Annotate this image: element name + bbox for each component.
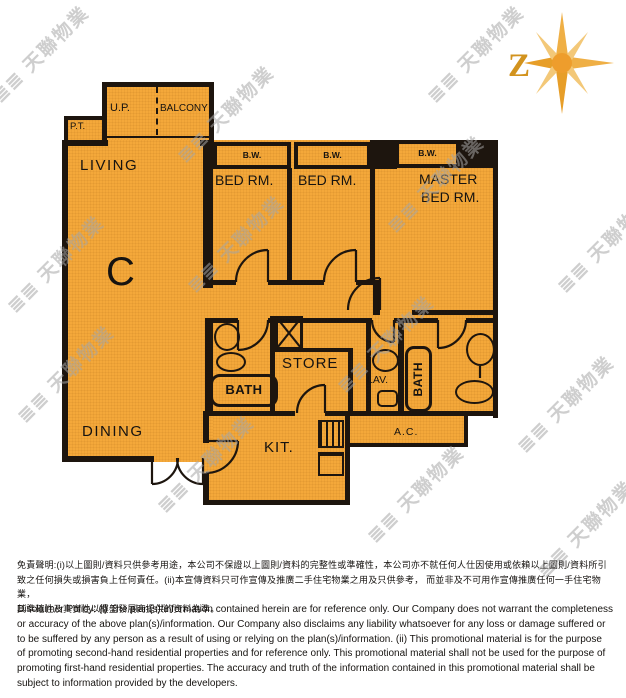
room-label-pt: P.T. (70, 122, 85, 132)
room-label-up: U.P. (110, 102, 130, 114)
room-label-bed1: BED RM. (215, 173, 273, 188)
room-label-ac: A.C. (394, 427, 418, 439)
door-arc-bed2 (324, 250, 356, 282)
door-arc-bed1 (236, 250, 268, 282)
door-arc-bath1 (238, 320, 268, 350)
room-label-store: STORE (282, 356, 338, 373)
unit-label: C (106, 250, 135, 294)
disclaimer-zh-line2: 致之任何損失或損害負上任何責任。(ii)本宣傳資料只可作宣傳及推廣二手住宅物業之… (17, 573, 613, 602)
room-label-balcony: BALCONY (160, 103, 208, 114)
room-label-living: LIVING (80, 158, 138, 175)
room-label-master-1: MASTER (419, 172, 477, 187)
room-label-lav: LAV. (367, 375, 388, 387)
door-arc-store (297, 385, 325, 413)
disclaimer-english: Disclaimer Policy: (i) The plan(s)/infor… (17, 603, 613, 692)
door-arc-kitchen (206, 441, 238, 473)
compass-direction-label: Z (508, 48, 530, 85)
floor-plan-page: B.W. B.W. B.W. BATH BATH (0, 0, 626, 698)
room-label-pd: P.D. (280, 318, 292, 325)
door-arc-master (348, 278, 380, 310)
disclaimer-zh-line1: 免責聲明:(i)以上圖則/資料只供參考用途，本公司不保證以上圖則/資料的完整性或… (17, 558, 613, 573)
room-label-kit: KIT. (264, 440, 294, 457)
door-arc-master-bath (438, 320, 466, 348)
door-arc-entrance-left (152, 458, 178, 484)
room-label-dining: DINING (82, 424, 144, 441)
door-arc-entrance-right (177, 458, 203, 484)
door-arc-lav (372, 320, 394, 342)
room-label-master-2: BED RM. (421, 190, 479, 205)
room-label-bed2: BED RM. (298, 173, 356, 188)
